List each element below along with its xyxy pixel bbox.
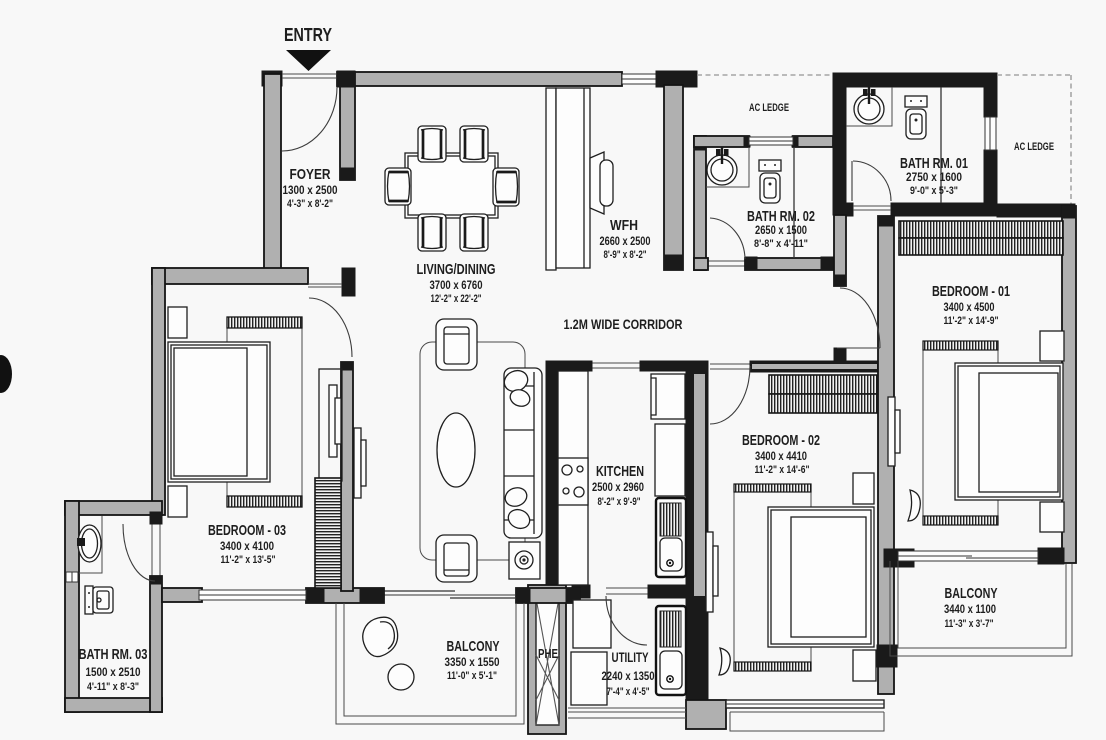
svg-text:LIVING/DINING: LIVING/DINING [417, 262, 496, 278]
svg-text:2500 x 2960: 2500 x 2960 [592, 480, 644, 494]
svg-text:BEDROOM - 01: BEDROOM - 01 [932, 284, 1010, 300]
svg-text:KITCHEN: KITCHEN [596, 464, 644, 480]
svg-text:11'-3" x 3'-7": 11'-3" x 3'-7" [945, 618, 994, 630]
svg-text:3400 x 4100: 3400 x 4100 [220, 539, 274, 553]
svg-text:BALCONY: BALCONY [447, 639, 500, 655]
svg-text:4'-3" x 8'-2": 4'-3" x 8'-2" [287, 198, 333, 210]
svg-text:3400 x 4500: 3400 x 4500 [944, 300, 995, 314]
svg-text:11'-0" x 5'-1": 11'-0" x 5'-1" [447, 670, 497, 682]
svg-text:3400 x 4410: 3400 x 4410 [755, 449, 807, 463]
svg-text:1.2M WIDE CORRIDOR: 1.2M WIDE CORRIDOR [564, 317, 683, 332]
svg-text:1500 x 2510: 1500 x 2510 [86, 665, 141, 679]
svg-text:2650 x 1500: 2650 x 1500 [755, 223, 807, 237]
svg-text:2660 x 2500: 2660 x 2500 [600, 234, 651, 248]
svg-text:BEDROOM - 03: BEDROOM - 03 [208, 523, 286, 539]
svg-text:BEDROOM - 02: BEDROOM - 02 [742, 433, 820, 449]
svg-text:BATH RM. 03: BATH RM. 03 [79, 647, 148, 663]
svg-text:3350 x 1550: 3350 x 1550 [445, 655, 500, 669]
svg-text:WFH: WFH [610, 218, 638, 234]
svg-text:8'-9" x 8'-2": 8'-9" x 8'-2" [604, 249, 647, 261]
svg-text:AC LEDGE: AC LEDGE [749, 102, 789, 114]
svg-text:BALCONY: BALCONY [945, 586, 998, 602]
svg-text:ENTRY: ENTRY [284, 24, 333, 45]
svg-text:4'-11" x 8'-3": 4'-11" x 8'-3" [87, 681, 139, 693]
svg-text:7'-4" x 4'-5": 7'-4" x 4'-5" [607, 686, 650, 698]
svg-text:3440 x 1100: 3440 x 1100 [944, 602, 996, 616]
svg-text:2240 x 1350: 2240 x 1350 [602, 669, 655, 683]
svg-text:11'-2" x 13'-5": 11'-2" x 13'-5" [221, 554, 276, 566]
svg-text:3700 x 6760: 3700 x 6760 [430, 278, 483, 292]
svg-text:PHE: PHE [538, 647, 558, 661]
svg-text:1300 x 2500: 1300 x 2500 [283, 183, 338, 197]
svg-text:AC LEDGE: AC LEDGE [1014, 141, 1054, 153]
svg-text:11'-2" x 14'-9": 11'-2" x 14'-9" [944, 315, 999, 327]
svg-text:11'-2" x 14'-6": 11'-2" x 14'-6" [755, 464, 810, 476]
svg-text:9'-0" x 5'-3": 9'-0" x 5'-3" [910, 185, 958, 197]
svg-text:8'-8" x 4'-11": 8'-8" x 4'-11" [754, 238, 808, 250]
svg-text:2750 x 1600: 2750 x 1600 [906, 170, 962, 184]
svg-text:8'-2" x 9'-9": 8'-2" x 9'-9" [598, 496, 641, 508]
svg-text:UTILITY: UTILITY [612, 650, 649, 665]
svg-text:12'-2" x 22'-2": 12'-2" x 22'-2" [431, 293, 482, 305]
svg-text:FOYER: FOYER [290, 167, 331, 183]
